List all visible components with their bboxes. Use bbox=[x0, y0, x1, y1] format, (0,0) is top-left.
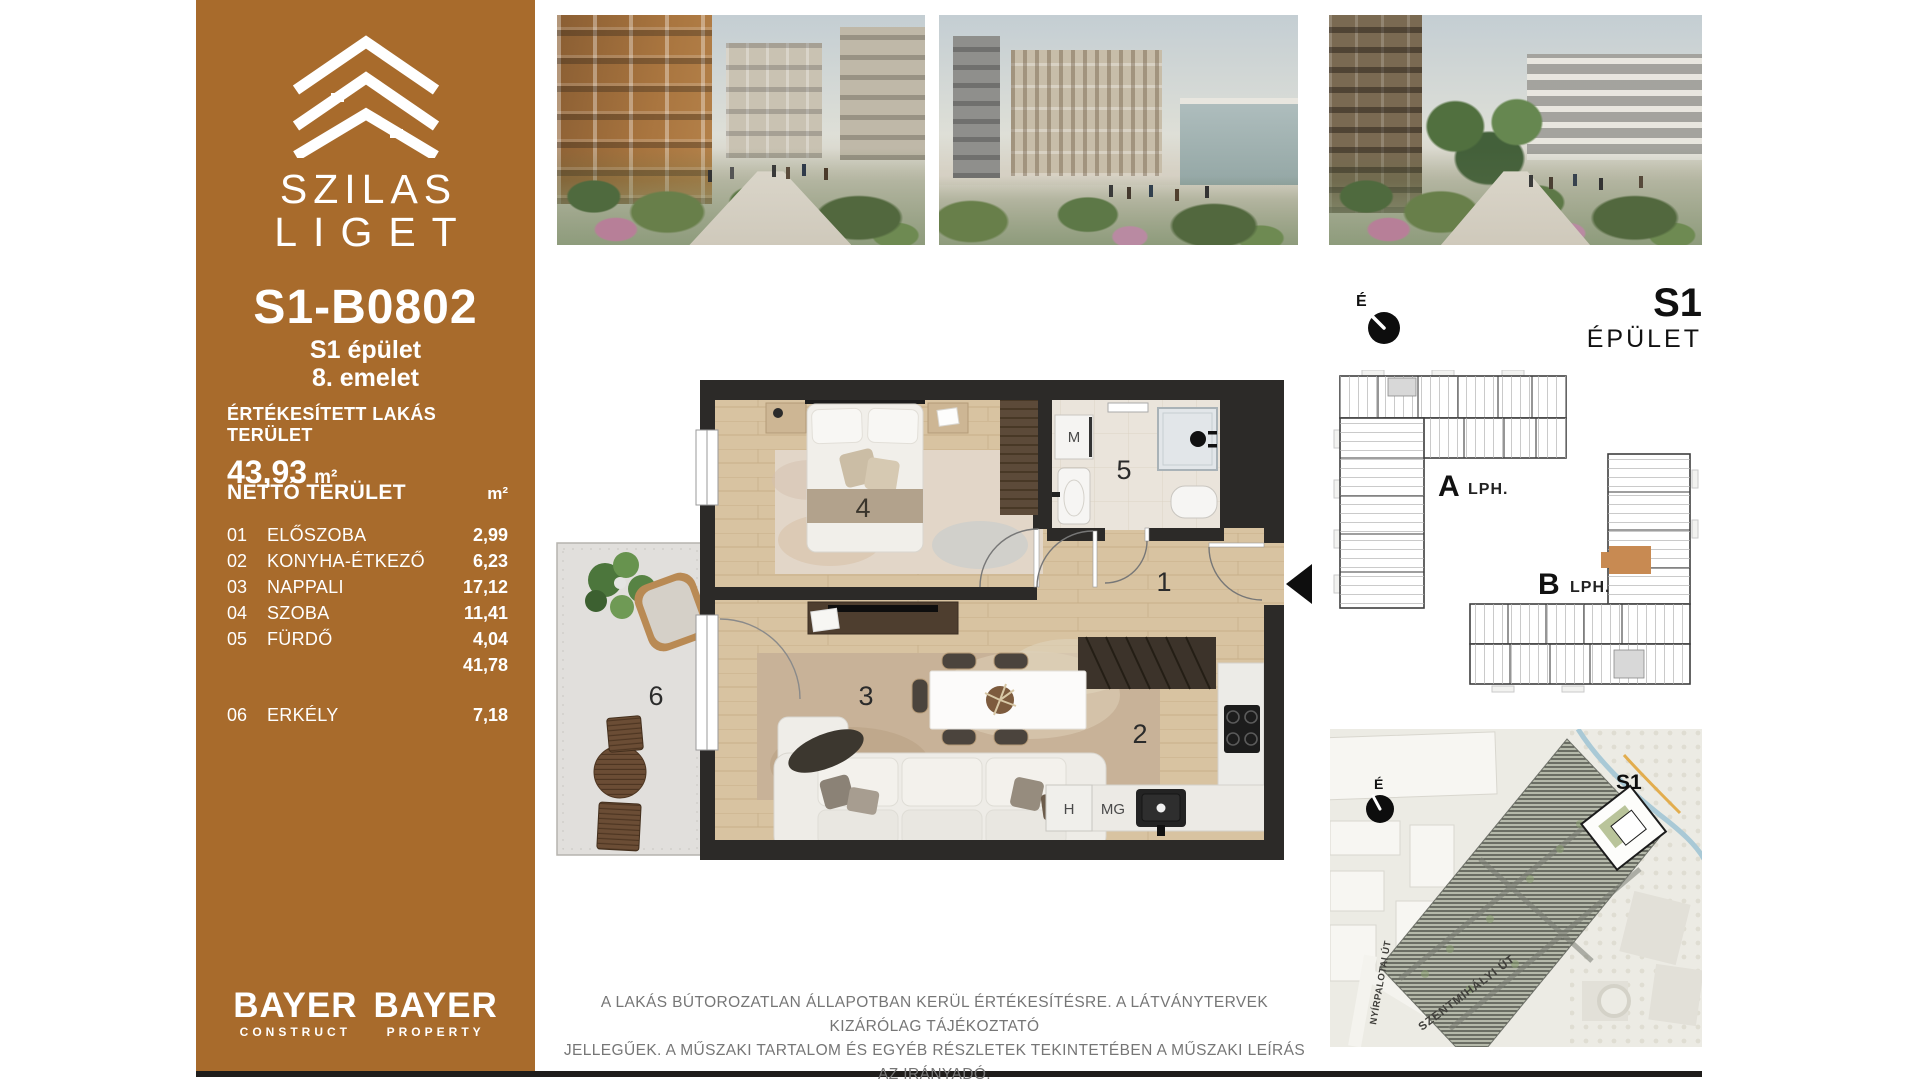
stair-b-suffix: LPH. bbox=[1570, 579, 1610, 596]
building-key-plan: A LPH. B LPH. bbox=[1332, 370, 1720, 700]
sidebar: SZILAS LIGET S1-B0802 S1 épület 8. emele… bbox=[196, 0, 535, 1071]
sold-area-label: ÉRTÉKESÍTETT LAKÁS TERÜLET bbox=[227, 404, 508, 446]
render-photo-park bbox=[1329, 15, 1702, 245]
room-number-bedroom: 4 bbox=[855, 493, 870, 523]
net-total-value: 41,78 bbox=[463, 655, 508, 676]
room-number-living: 3 bbox=[858, 681, 873, 711]
north-indicator: É bbox=[1340, 288, 1420, 358]
shower bbox=[1158, 408, 1217, 470]
people bbox=[1109, 185, 1113, 197]
stair-a-suffix: LPH. bbox=[1468, 481, 1508, 498]
people bbox=[1529, 175, 1533, 187]
room-name: ELŐSZOBA bbox=[267, 525, 473, 546]
logo-sub: CONSTRUCT bbox=[233, 1026, 357, 1038]
bayer-property-logo: BAYER PROPERTY bbox=[374, 988, 498, 1038]
net-area-header: NETTÓ TERÜLET m² bbox=[227, 481, 508, 505]
room-number-kitchen: 2 bbox=[1132, 719, 1147, 749]
room-number-balcony: 6 bbox=[648, 681, 663, 711]
logo-word: BAYER bbox=[233, 988, 357, 1023]
room-num: 03 bbox=[227, 577, 267, 598]
site-map: É S1 NYÍRPALOTAI ÚT SZENTMIHÁLYI ÚT bbox=[1330, 729, 1702, 1047]
disclaimer-line2: JELLEGŰEK. A MŰSZAKI TARTALOM ÉS EGYÉB R… bbox=[557, 1039, 1312, 1080]
people bbox=[772, 165, 776, 177]
lounger bbox=[597, 802, 641, 851]
building-heading: S1 ÉPÜLET bbox=[1520, 283, 1702, 352]
landscaping bbox=[939, 176, 1298, 245]
room-name: ERKÉLY bbox=[267, 705, 473, 726]
room-area: 6,23 bbox=[473, 551, 508, 572]
room-area: 2,99 bbox=[473, 525, 508, 546]
room-table: 01 ELŐSZOBA 2,99 02 KONYHA-ÉTKEZŐ 6,23 0… bbox=[227, 522, 508, 728]
disclaimer-line1: A LAKÁS BÚTOROZATLAN ÁLLAPOTBAN KERÜL ÉR… bbox=[557, 991, 1312, 1039]
bedroom-furniture bbox=[766, 399, 1043, 574]
table-row: 02 KONYHA-ÉTKEZŐ 6,23 bbox=[227, 548, 508, 574]
room-num: 05 bbox=[227, 629, 267, 650]
toilet bbox=[1171, 486, 1217, 518]
net-area-unit: m² bbox=[487, 484, 508, 504]
building-facade bbox=[840, 27, 925, 160]
dishwasher-label: MG bbox=[1101, 801, 1125, 818]
tv bbox=[828, 605, 938, 612]
developer-logos: BAYER CONSTRUCT BAYER PROPERTY bbox=[196, 988, 535, 1038]
building-facade bbox=[1011, 50, 1162, 177]
brand-line1: SZILAS bbox=[196, 168, 535, 211]
apartment-floorplan: 1 2 3 4 5 6 M H MG bbox=[550, 365, 1320, 870]
room-num: 04 bbox=[227, 603, 267, 624]
highlighted-unit bbox=[1609, 546, 1651, 574]
building-label: ÉPÜLET bbox=[1520, 327, 1702, 352]
entrance-arrow-icon bbox=[1286, 564, 1312, 604]
room-number-hall: 1 bbox=[1156, 567, 1171, 597]
table-row-balcony: 06 ERKÉLY 7,18 bbox=[227, 702, 508, 728]
render-photo-courtyard bbox=[557, 15, 925, 245]
unit-building: S1 épület bbox=[196, 336, 535, 364]
net-area-label: NETTÓ TERÜLET bbox=[227, 481, 406, 505]
logo-word: BAYER bbox=[374, 988, 498, 1023]
map-building-code: S1 bbox=[1616, 771, 1642, 794]
room-num: 02 bbox=[227, 551, 267, 572]
brochure-page: SZILAS LIGET S1-B0802 S1 épület 8. emele… bbox=[0, 0, 1920, 1080]
building-facade bbox=[953, 36, 1000, 179]
room-name: NAPPALI bbox=[267, 577, 463, 598]
table-row: 03 NAPPALI 17,12 bbox=[227, 574, 508, 600]
unit-id: S1-B0802 bbox=[196, 280, 535, 335]
building-facade bbox=[726, 43, 822, 158]
north-label: É bbox=[1356, 291, 1367, 310]
sold-area-block: ÉRTÉKESÍTETT LAKÁS TERÜLET 43,93m² bbox=[227, 404, 508, 491]
balcony-table bbox=[594, 746, 646, 798]
glass-pavilion bbox=[1180, 98, 1298, 187]
room-name: FÜRDŐ bbox=[267, 629, 473, 650]
nightstand bbox=[766, 403, 806, 433]
room-number-bath: 5 bbox=[1116, 455, 1131, 485]
room-area: 11,41 bbox=[464, 603, 508, 624]
room-name: SZOBA bbox=[267, 603, 464, 624]
stair-b-label: B bbox=[1538, 568, 1560, 601]
szilas-liget-logo-icon bbox=[276, 30, 456, 158]
room-num: 06 bbox=[227, 705, 267, 726]
disclaimer: A LAKÁS BÚTOROZATLAN ÁLLAPOTBAN KERÜL ÉR… bbox=[557, 991, 1312, 1080]
room-num: 01 bbox=[227, 525, 267, 546]
table-row: 05 FÜRDŐ 4,04 bbox=[227, 626, 508, 652]
stair-a-label: A bbox=[1438, 470, 1460, 503]
brand-line2: LIGET bbox=[196, 211, 535, 254]
table-row: 01 ELŐSZOBA 2,99 bbox=[227, 522, 508, 548]
stair-labels: A LPH. B LPH. bbox=[1438, 470, 1610, 601]
table-total-row: 41,78 bbox=[227, 652, 508, 678]
unit-subtitle: S1 épület 8. emelet bbox=[196, 336, 535, 392]
brand-name: SZILAS LIGET bbox=[196, 168, 535, 255]
map-north-label: É bbox=[1374, 776, 1383, 792]
room-name: KONYHA-ÉTKEZŐ bbox=[267, 551, 473, 572]
render-photo-plaza bbox=[939, 15, 1298, 245]
bayer-construct-logo: BAYER CONSTRUCT bbox=[233, 988, 357, 1038]
room-area: 7,18 bbox=[473, 705, 508, 726]
fridge-label: H bbox=[1064, 801, 1075, 818]
table-row: 04 SZOBA 11,41 bbox=[227, 600, 508, 626]
wardrobe bbox=[1000, 400, 1042, 515]
room-area: 17,12 bbox=[463, 577, 508, 598]
washer-label: M bbox=[1068, 429, 1081, 446]
unit-floor: 8. emelet bbox=[196, 364, 535, 392]
folding-chair bbox=[607, 716, 644, 753]
building-code: S1 bbox=[1520, 283, 1702, 323]
room-area: 4,04 bbox=[473, 629, 508, 650]
logo-sub: PROPERTY bbox=[374, 1026, 498, 1038]
